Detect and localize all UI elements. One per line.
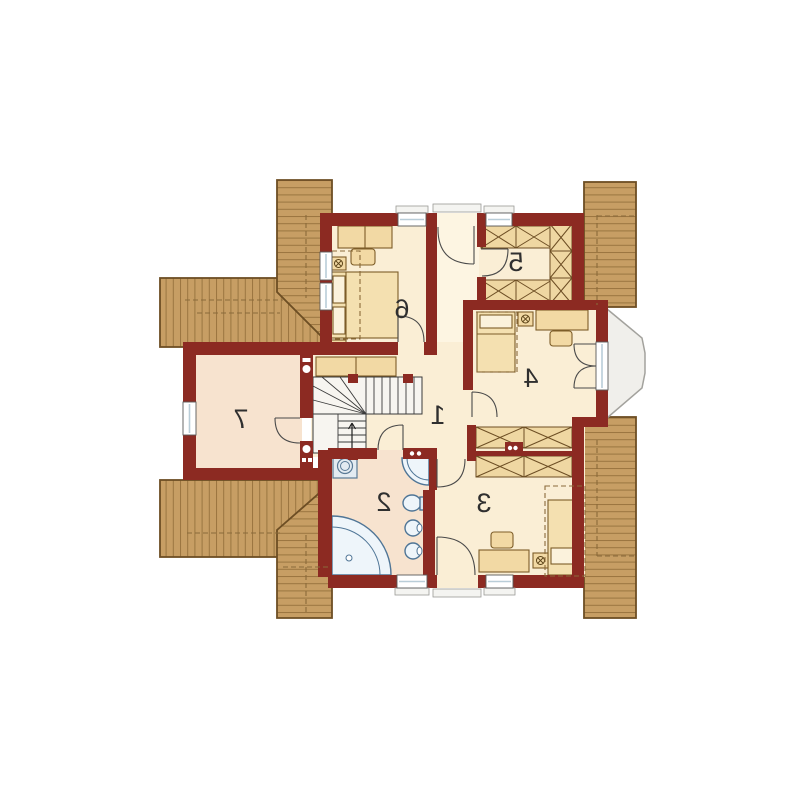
room-label-1: 1	[430, 400, 445, 430]
room-label-3: 3	[476, 488, 491, 518]
floor-plan-drawing: 1 2 3 4 5 6 7	[0, 0, 800, 800]
balcony-icon	[607, 309, 645, 418]
room-label-7: 7	[233, 404, 248, 434]
room-label-4: 4	[523, 363, 538, 393]
room-label-2: 2	[376, 487, 391, 517]
pillow	[333, 307, 345, 334]
room-label-6: 6	[394, 294, 409, 324]
pillow	[480, 315, 512, 328]
toilet-icon	[403, 495, 421, 511]
desk-icon	[479, 550, 529, 572]
pillow	[333, 276, 345, 303]
room-label-5: 5	[508, 247, 523, 277]
floor-plan-canvas: 1 2 3 4 5 6 7	[0, 0, 800, 800]
chair-icon	[550, 331, 572, 346]
roof-deck-icon	[584, 417, 636, 618]
roof-deck-icon	[584, 182, 636, 307]
desk-icon	[536, 310, 588, 330]
chair-icon	[491, 532, 513, 548]
chair-icon	[351, 249, 375, 265]
